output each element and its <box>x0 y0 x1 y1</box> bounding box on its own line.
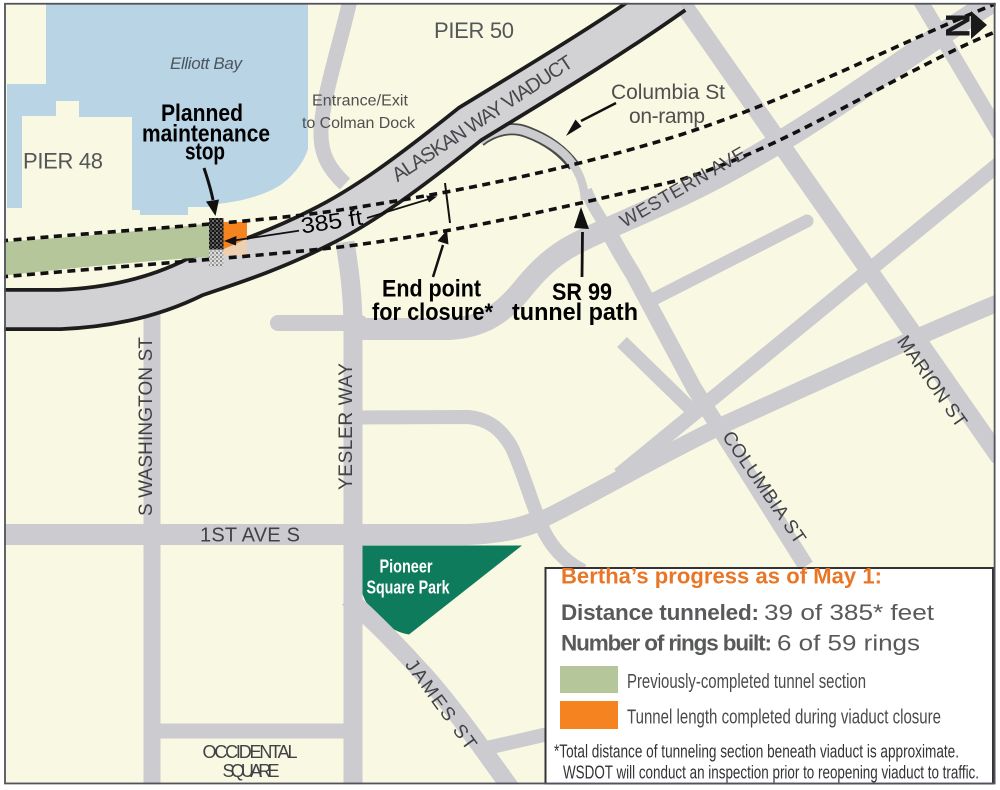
svg-text:Distance tunneled:39 of 385* f: Distance tunneled:39 of 385* feet <box>561 600 935 625</box>
svg-text:*Total distance of tunneling s: *Total distance of tunneling section ben… <box>554 742 959 762</box>
svg-text:Entrance/Exit: Entrance/Exit <box>312 93 409 110</box>
svg-text:Columbia St: Columbia St <box>611 81 725 104</box>
svg-text:Bertha’s progress as of May 1:: Bertha’s progress as of May 1: <box>561 564 882 589</box>
svg-text:Tunnel length completed during: Tunnel length completed during viaduct c… <box>627 707 941 729</box>
svg-text:for closure*: for closure* <box>372 299 494 326</box>
svg-text:N: N <box>938 13 976 38</box>
svg-text:Number of rings built:6 of 59: Number of rings built:6 of 59 rings <box>561 631 920 656</box>
svg-text:Elliott Bay: Elliott Bay <box>170 54 244 73</box>
svg-text:Previously-completed tunnel se: Previously-completed tunnel section <box>627 671 866 693</box>
svg-text:1ST AVE S: 1ST AVE S <box>200 525 300 547</box>
svg-text:PIER 48: PIER 48 <box>23 149 103 174</box>
svg-text:stop: stop <box>185 139 225 166</box>
svg-text:YESLER WAY: YESLER WAY <box>336 363 357 490</box>
svg-text:PIER 50: PIER 50 <box>434 18 514 43</box>
svg-text:Pioneer: Pioneer <box>380 556 433 577</box>
svg-text:Square Park: Square Park <box>367 577 451 598</box>
svg-text:S WASHINGTON ST: S WASHINGTON ST <box>136 337 157 516</box>
svg-text:SQUARE: SQUARE <box>223 761 280 781</box>
svg-text:tunnel path: tunnel path <box>512 299 638 326</box>
svg-text:to Colman Dock: to Colman Dock <box>302 115 416 132</box>
svg-text:on-ramp: on-ramp <box>629 105 705 128</box>
svg-text:OCCIDENTAL: OCCIDENTAL <box>203 742 298 762</box>
svg-text:WSDOT will conduct an inspecti: WSDOT will conduct an inspection prior t… <box>563 763 979 783</box>
